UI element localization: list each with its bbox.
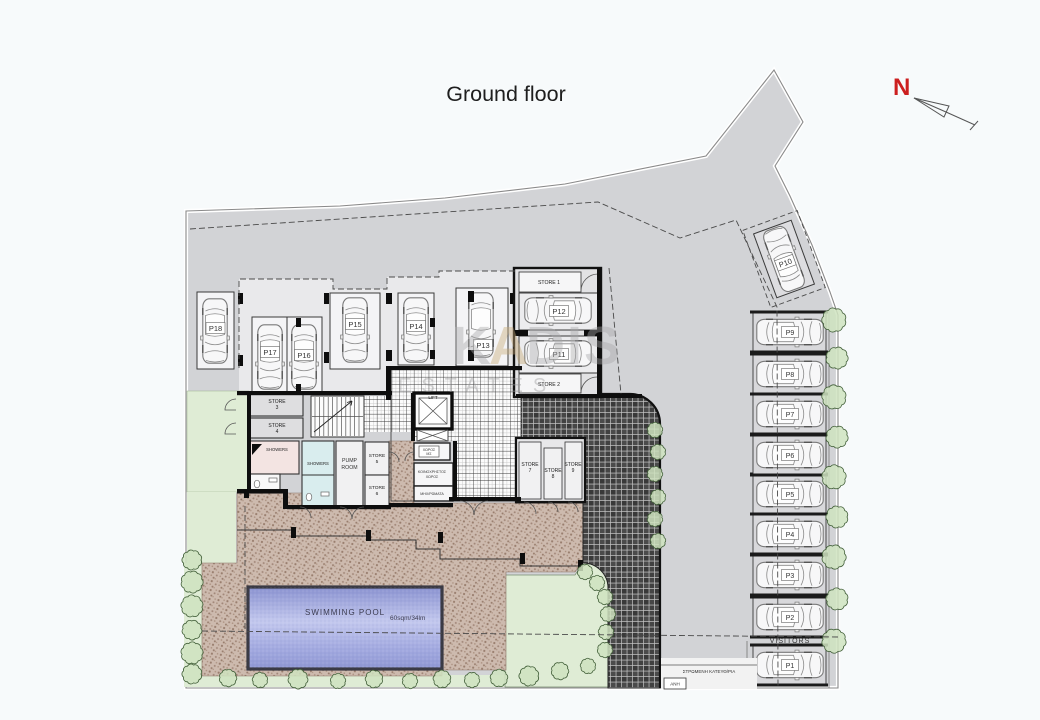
svg-text:P6: P6 [786,453,795,460]
svg-text:PUMP: PUMP [342,458,358,464]
svg-text:P5: P5 [786,492,795,499]
svg-text:A: A [489,316,530,376]
svg-text:7: 7 [529,468,532,474]
svg-text:ΚΟΙΝΟΧΡΗΣΤΟΣ: ΚΟΙΝΟΧΡΗΣΤΟΣ [418,470,447,474]
svg-text:STORE: STORE [369,485,385,491]
svg-text:VISITORS: VISITORS [770,638,811,645]
svg-text:P3: P3 [786,573,795,580]
svg-text:P14: P14 [409,322,422,331]
svg-text:P4: P4 [786,532,795,539]
svg-text:ΣΤΡΩΜΕΝΗ ΚΑΤΕΥΘ/ΡΙΑ: ΣΤΡΩΜΕΝΗ ΚΑΤΕΥΘ/ΡΙΑ [683,669,736,674]
svg-text:DIS: DIS [526,316,622,376]
svg-text:ΜΗΧ/ΡΩΜΑΤΑ: ΜΗΧ/ΡΩΜΑΤΑ [420,492,444,496]
svg-text:9: 9 [572,468,575,474]
svg-text:60sqm/34lm: 60sqm/34lm [390,615,425,622]
svg-text:P9: P9 [786,330,795,337]
svg-text:SHOWERS: SHOWERS [266,447,288,452]
svg-text:8: 8 [552,474,555,480]
svg-text:5: 5 [376,459,379,465]
svg-text:P12: P12 [552,307,565,316]
svg-text:P1: P1 [786,663,795,670]
svg-text:ESTATES: ESTATES [398,375,556,397]
svg-text:P18: P18 [209,324,222,333]
svg-text:3: 3 [276,405,279,411]
svg-text:P7: P7 [786,412,795,419]
svg-text:6: 6 [376,491,379,497]
svg-text:STORE 1: STORE 1 [538,280,560,286]
svg-text:P2: P2 [786,615,795,622]
svg-text:P15: P15 [348,320,361,329]
svg-text:SHOWERS: SHOWERS [307,461,329,466]
svg-text:ROOM: ROOM [341,465,357,471]
svg-text:SWIMMING POOL: SWIMMING POOL [305,608,385,617]
svg-text:Ground floor: Ground floor [446,82,566,106]
svg-text:ΜΣ: ΜΣ [426,452,432,456]
svg-text:STORE: STORE [369,453,385,459]
svg-text:K: K [452,316,493,376]
svg-text:P8: P8 [786,372,795,379]
svg-text:4: 4 [276,429,279,435]
svg-text:ΧΩΡΟΣ: ΧΩΡΟΣ [426,475,439,479]
svg-text:N: N [893,74,910,101]
svg-text:P16: P16 [297,351,310,360]
svg-text:P17: P17 [263,348,276,357]
svg-text:ΑΝΗ: ΑΝΗ [670,682,680,687]
